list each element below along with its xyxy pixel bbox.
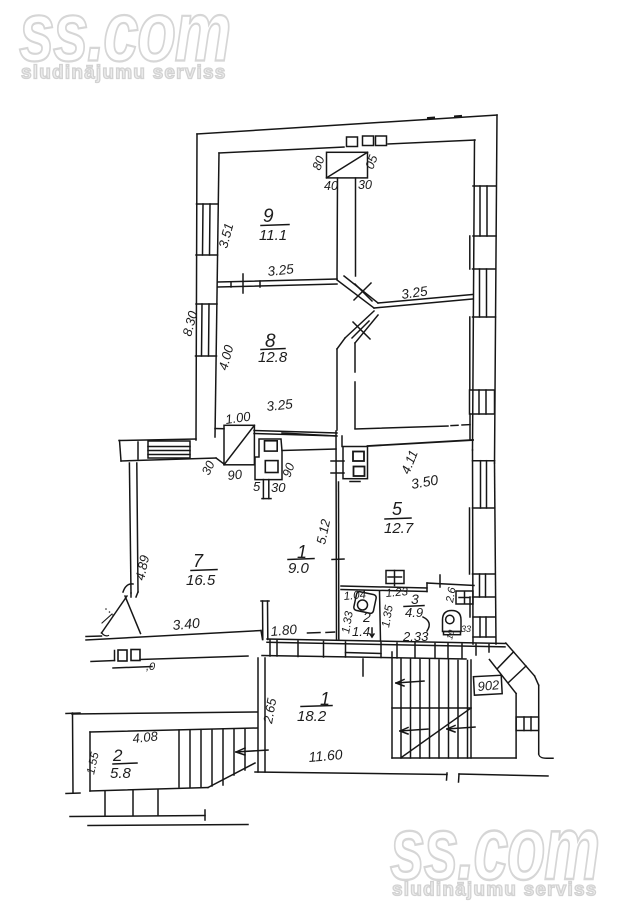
- svg-text:,0: ,0: [146, 661, 156, 673]
- svg-text:9.0: 9.0: [288, 560, 310, 577]
- svg-text:1.55: 1.55: [85, 751, 102, 776]
- svg-text:4.08: 4.08: [132, 728, 159, 746]
- svg-text:40: 40: [324, 179, 338, 193]
- svg-text:90: 90: [227, 466, 244, 483]
- svg-text:5: 5: [253, 479, 261, 494]
- svg-text:sludinājumu serviss: sludinājumu serviss: [392, 880, 597, 901]
- svg-text:7: 7: [193, 551, 204, 571]
- svg-text:1.80: 1.80: [270, 622, 298, 639]
- svg-text:sludinājumu serviss: sludinājumu serviss: [21, 63, 226, 84]
- svg-text:3.50: 3.50: [410, 471, 440, 492]
- svg-text:3.25: 3.25: [267, 261, 295, 279]
- svg-text:3.25: 3.25: [266, 396, 294, 414]
- svg-text:8.30: 8.30: [179, 309, 200, 338]
- svg-text:30: 30: [271, 480, 286, 495]
- svg-text:33: 33: [461, 624, 471, 634]
- svg-text:1.04: 1.04: [343, 589, 366, 603]
- svg-text:1.23: 1.23: [385, 586, 409, 600]
- svg-text:11.60: 11.60: [308, 746, 343, 765]
- svg-text:9: 9: [263, 206, 274, 227]
- svg-text:4.11: 4.11: [398, 448, 421, 476]
- svg-text:4.00: 4.00: [215, 343, 236, 372]
- svg-text:2.65: 2.65: [260, 696, 279, 725]
- svg-text:4.89: 4.89: [132, 554, 152, 582]
- svg-text:1.35: 1.35: [380, 604, 396, 629]
- svg-text:18.2: 18.2: [297, 708, 327, 725]
- svg-text:10: 10: [444, 629, 456, 641]
- svg-text:1.00: 1.00: [224, 408, 252, 426]
- svg-text:11.1: 11.1: [259, 227, 287, 244]
- svg-text:12.8: 12.8: [258, 349, 288, 366]
- svg-text:80: 80: [310, 154, 328, 172]
- svg-text:16.5: 16.5: [186, 572, 216, 589]
- svg-text:05: 05: [363, 153, 381, 171]
- svg-text:1.4: 1.4: [352, 624, 370, 639]
- svg-text:902: 902: [477, 677, 501, 694]
- svg-text:30: 30: [199, 459, 218, 478]
- svg-text:2: 2: [112, 746, 123, 765]
- svg-text:12.7: 12.7: [384, 520, 414, 537]
- svg-text:5: 5: [392, 499, 403, 519]
- svg-text:5.12: 5.12: [313, 517, 333, 546]
- svg-text:2: 2: [362, 609, 371, 625]
- svg-text:5.8: 5.8: [110, 765, 132, 782]
- svg-text:30: 30: [358, 178, 372, 192]
- svg-text:3.40: 3.40: [172, 615, 201, 633]
- svg-text:4.9: 4.9: [405, 605, 423, 620]
